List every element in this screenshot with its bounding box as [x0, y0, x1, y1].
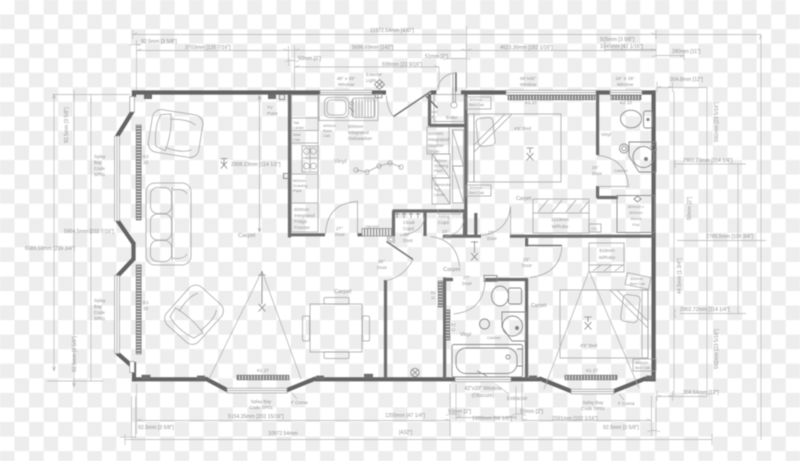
svg-text:92.5mm [3 5/8"]: 92.5mm [3 5/8"]	[64, 107, 70, 143]
svg-text:24" X 39": 24" X 39"	[615, 76, 634, 81]
svg-text:Pack: Pack	[293, 188, 302, 193]
svg-text:925mm [3 5/8"]: 925mm [3 5/8"]	[600, 37, 635, 43]
svg-text:CU: CU	[591, 226, 597, 231]
svg-text:1218mm: 1218mm	[551, 217, 569, 222]
svg-text:600mm: 600mm	[294, 207, 309, 212]
svg-text:2591mm [102 1/16"]: 2591mm [102 1/16"]	[552, 416, 598, 422]
svg-text:Code: Code	[94, 310, 105, 315]
svg-text:W/Robe: W/Robe	[599, 255, 616, 260]
svg-text:Window: Window	[338, 82, 355, 87]
svg-text:K2: K2	[143, 154, 149, 159]
svg-text:33: 33	[143, 160, 149, 165]
svg-text:Pack: Pack	[434, 168, 443, 173]
svg-text:2789.5mm [109 3/4"]: 2789.5mm [109 3/4"]	[706, 234, 754, 240]
svg-text:Integrated: Integrated	[428, 137, 449, 142]
svg-text:Cab: Cab	[323, 133, 330, 138]
svg-text:92.5mm [3 5/8"]: 92.5mm [3 5/8"]	[72, 336, 78, 372]
svg-text:OBOKR: OBOKR	[365, 224, 379, 229]
svg-text:33: 33	[143, 306, 149, 311]
svg-text:Door: Door	[487, 236, 497, 241]
svg-text:10972.54mm: 10972.54mm	[268, 431, 298, 437]
svg-text:Boiler: Boiler	[446, 115, 458, 120]
svg-text:11972.54mm [430"]: 11972.54mm [430"]	[370, 28, 414, 34]
svg-text:3703mm [126 7/16"]: 3703mm [126 7/16"]	[185, 45, 231, 51]
svg-text:Vinyl: Vinyl	[334, 159, 346, 165]
svg-text:Window: Window	[617, 82, 634, 87]
svg-text:5904.5mm [232 7/16"]: 5904.5mm [232 7/16"]	[64, 229, 115, 235]
svg-text:F Corna: F Corna	[291, 400, 308, 405]
svg-text:24": 24"	[404, 232, 411, 237]
svg-text:6089.59mm [239 3/4"]: 6089.59mm [239 3/4"]	[25, 246, 76, 252]
svg-text:280mm [11"]: 280mm [11"]	[672, 49, 701, 55]
svg-text:Point: Point	[267, 111, 278, 116]
svg-text:Code SP01: Code SP01	[249, 405, 273, 410]
svg-text:K1 27: K1 27	[525, 100, 537, 105]
svg-text:Code SP01: Code SP01	[581, 406, 605, 411]
svg-text:Door: Door	[462, 281, 472, 286]
svg-text:66"x45": 66"x45"	[520, 76, 536, 81]
svg-text:W/Robe: W/Robe	[552, 224, 569, 229]
svg-text:Carpet: Carpet	[238, 233, 256, 239]
svg-text:Washer: Washer	[428, 143, 444, 148]
svg-text:Door: Door	[522, 263, 532, 268]
svg-text:Splay: Splay	[94, 154, 106, 159]
svg-text:2902.72mm [114 1/4"]: 2902.72mm [114 1/4"]	[680, 307, 730, 313]
svg-text:K2: K2	[143, 300, 149, 305]
svg-text:27": 27"	[336, 226, 343, 231]
svg-text:Pod: Pod	[633, 222, 640, 227]
svg-text:Larder: Larder	[434, 192, 446, 197]
svg-text:Bay: Bay	[94, 304, 103, 309]
svg-text:Vinyl: Vinyl	[601, 132, 611, 137]
svg-text:92.5mm [3 5/8"]: 92.5mm [3 5/8"]	[138, 425, 174, 431]
svg-text:2901.23mm [114 1/4"]: 2901.23mm [114 1/4"]	[683, 158, 733, 164]
svg-text:Bed Cab: Bed Cab	[630, 281, 645, 286]
svg-text:Bed Cab: Bed Cab	[469, 190, 484, 195]
svg-text:24": 24"	[592, 165, 599, 170]
svg-text:Door: Door	[377, 265, 387, 270]
svg-text:SP01: SP01	[94, 172, 106, 177]
svg-text:48" x 39": 48" x 39"	[337, 76, 356, 81]
svg-text:K1 27: K1 27	[257, 368, 269, 373]
svg-text:TV: TV	[267, 105, 274, 110]
svg-text:92.5mm [3 5/8"]: 92.5mm [3 5/8"]	[141, 39, 177, 45]
svg-text:1045mm [42 1/16"]: 1045mm [42 1/16"]	[600, 44, 643, 50]
svg-text:92.5mm [3 5/8"]: 92.5mm [3 5/8"]	[603, 425, 639, 431]
svg-text:Cloak: Cloak	[403, 220, 415, 225]
svg-text:12: 12	[451, 327, 455, 332]
svg-text:4'6" Bed: 4'6" Bed	[580, 343, 598, 348]
svg-text:Bed Cab: Bed Cab	[635, 365, 650, 370]
svg-text:Carpet: Carpet	[334, 289, 352, 295]
svg-text:Fridge: Fridge	[294, 219, 307, 224]
svg-text:Integrated: Integrated	[294, 213, 315, 218]
svg-text:Cabinet: Cabinet	[614, 168, 628, 173]
svg-text:51mm [2"]: 51mm [2"]	[425, 54, 449, 60]
svg-text:44.5mm [1 3/4"]: 44.5mm [1 3/4"]	[677, 258, 683, 294]
svg-text:304.8mm [12"]: 304.8mm [12"]	[670, 77, 704, 83]
svg-text:K1 27: K1 27	[586, 368, 598, 373]
svg-text:42"x39" Window: 42"x39" Window	[464, 386, 501, 392]
svg-text:4'6" Bed: 4'6" Bed	[514, 126, 532, 131]
svg-text:800mm: 800mm	[630, 210, 643, 215]
svg-text:Extractor: Extractor	[507, 396, 528, 402]
svg-text:1200mm [47 1/4"]: 1200mm [47 1/4"]	[385, 413, 426, 419]
svg-text:Integrated: Integrated	[348, 130, 369, 135]
svg-text:27": 27"	[488, 230, 495, 235]
svg-text:Cupd: Cupd	[403, 226, 414, 231]
svg-text:Door: Door	[592, 171, 602, 176]
svg-text:592mm [23 5/16"]: 592mm [23 5/16"]	[714, 328, 720, 369]
svg-text:(Obscure): (Obscure)	[472, 393, 495, 399]
svg-text:Carpet: Carpet	[443, 267, 461, 273]
svg-text:Splay: Splay	[94, 298, 106, 303]
svg-text:24": 24"	[442, 229, 449, 234]
svg-text:5696.69mm [142"]: 5696.69mm [142"]	[352, 45, 394, 51]
svg-text:Cupd: Cupd	[438, 220, 449, 225]
svg-text:Bed Cab: Bed Cab	[469, 102, 484, 107]
svg-text:23": 23"	[523, 257, 530, 262]
svg-text:36": 36"	[378, 259, 385, 264]
svg-text:592mm [23 5/16"]: 592mm [23 5/16"]	[714, 101, 720, 142]
svg-text:Window: Window	[520, 82, 537, 87]
svg-text:Exterior: Exterior	[366, 72, 382, 77]
svg-text:1680mm [66 1/8"]: 1680mm [66 1/8"]	[472, 416, 513, 422]
svg-text:F Corna: F Corna	[618, 401, 635, 406]
svg-text:Door: Door	[403, 238, 413, 243]
svg-text:Larder: Larder	[293, 125, 305, 130]
svg-text:50mm [2"]: 50mm [2"]	[298, 56, 322, 62]
svg-text:Airing: Airing	[438, 214, 450, 219]
svg-text:800mm x: 800mm x	[628, 204, 644, 209]
svg-text:K2 12: K2 12	[620, 100, 632, 105]
svg-text:24": 24"	[429, 114, 435, 119]
svg-text:Dishwasher: Dishwasher	[348, 136, 372, 141]
svg-text:Splay Bay: Splay Bay	[583, 400, 604, 405]
svg-text:2908.23mm [114 1/2"]: 2908.23mm [114 1/2"]	[231, 162, 281, 168]
svg-text:Splay Bay: Splay Bay	[251, 399, 272, 404]
svg-text:Code: Code	[94, 166, 105, 171]
svg-text:5154.35mm [202 15/16"]: 5154.35mm [202 15/16"]	[228, 414, 284, 420]
svg-text:Above: Above	[630, 216, 641, 221]
svg-text:599mm [23 9/16"]: 599mm [23 9/16"]	[382, 62, 423, 68]
svg-text:Carpet: Carpet	[516, 196, 532, 202]
svg-text:600mm: 600mm	[428, 131, 443, 136]
svg-text:Freezer: Freezer	[294, 225, 310, 230]
svg-text:304.64mm [12"]: 304.64mm [12"]	[683, 390, 719, 396]
svg-text:27": 27"	[463, 275, 470, 280]
svg-text:50mm [2"]: 50mm [2"]	[687, 196, 693, 220]
svg-text:50mm [2"]: 50mm [2"]	[520, 409, 544, 415]
svg-text:50mm [2"]: 50mm [2"]	[448, 409, 472, 415]
svg-text:600mm: 600mm	[348, 124, 363, 129]
svg-text:SP01: SP01	[94, 316, 106, 321]
svg-text:Cabinet: Cabinet	[487, 335, 501, 340]
svg-text:Door: Door	[442, 235, 452, 240]
svg-text:Door: Door	[335, 232, 345, 237]
svg-text:Bay: Bay	[94, 160, 103, 165]
svg-text:4623.36mm [182 1/16"]: 4623.36mm [182 1/16"]	[500, 45, 553, 51]
svg-text:818mm: 818mm	[599, 248, 614, 253]
svg-text:Dryer: Dryer	[428, 149, 440, 154]
svg-text:Cab: Cab	[293, 137, 300, 142]
svg-text:Carpet: Carpet	[531, 303, 547, 309]
svg-text:Light: Light	[366, 78, 377, 83]
svg-text:[432"]: [432"]	[399, 430, 413, 436]
svg-text:Vinyl: Vinyl	[460, 332, 471, 338]
svg-text:11: 11	[431, 295, 435, 300]
